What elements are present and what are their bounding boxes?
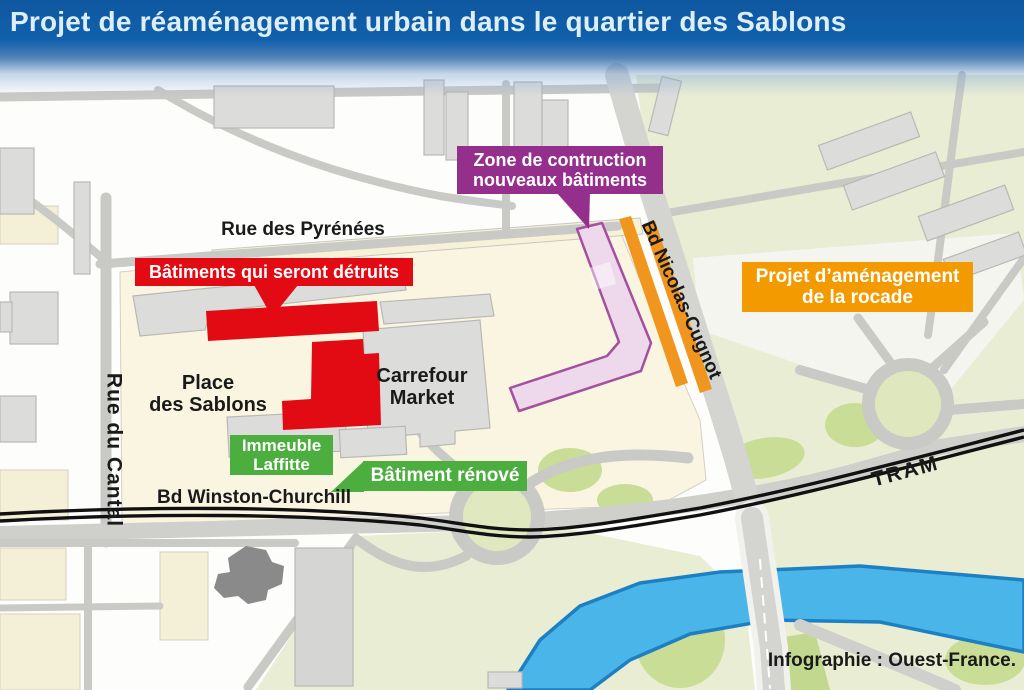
rocade-badge-line2: de la rocade (742, 287, 973, 308)
page-title: Projet de réaménagement urbain dans le q… (10, 6, 847, 38)
street-label-rue-du-cantal: Rue du Cantal (102, 373, 125, 527)
place-label-line1: Place (182, 372, 234, 394)
rocade-project-badge: Projet d’aménagement de la rocade (742, 262, 973, 312)
infographic-map: Rue des Pyrénées Place des Sablons Carre… (0, 0, 1024, 690)
map-canvas (0, 0, 1024, 690)
carrefour-label-line1: Carrefour (376, 365, 467, 387)
construction-badge-line2: nouveaux bâtiments (457, 170, 663, 190)
construction-badge-line1: Zone de contruction (457, 150, 663, 170)
immeuble-badge-line2: Laffitte (230, 455, 333, 474)
construction-zone-badge: Zone de contruction nouveaux bâtiments (457, 146, 663, 194)
place-des-sablons-label: Place des Sablons (128, 372, 288, 416)
street-label-rue-des-pyrenees: Rue des Pyrénées (218, 220, 388, 241)
header-banner: Projet de réaménagement urbain dans le q… (0, 0, 1024, 96)
destroyed-buildings-badge: Bâtiments qui seront détruits (135, 258, 413, 286)
immeuble-laffitte-badge: Immeuble Laffitte (230, 435, 333, 475)
carrefour-label-line2: Market (390, 387, 454, 409)
immeuble-badge-line1: Immeuble (230, 436, 333, 455)
renovated-building-badge: Bâtiment rénové (363, 461, 527, 491)
destroyed-badge-label: Bâtiments qui seront détruits (135, 262, 413, 282)
carrefour-market-label: Carrefour Market (358, 365, 486, 409)
street-label-bd-winston-churchill: Bd Winston-Churchill (148, 488, 360, 509)
renove-badge-label: Bâtiment rénové (363, 465, 527, 486)
rocade-badge-line1: Projet d’aménagement (742, 266, 973, 287)
credit-line: Infographie : Ouest-France. (760, 650, 1016, 672)
place-label-line2: des Sablons (149, 394, 267, 416)
